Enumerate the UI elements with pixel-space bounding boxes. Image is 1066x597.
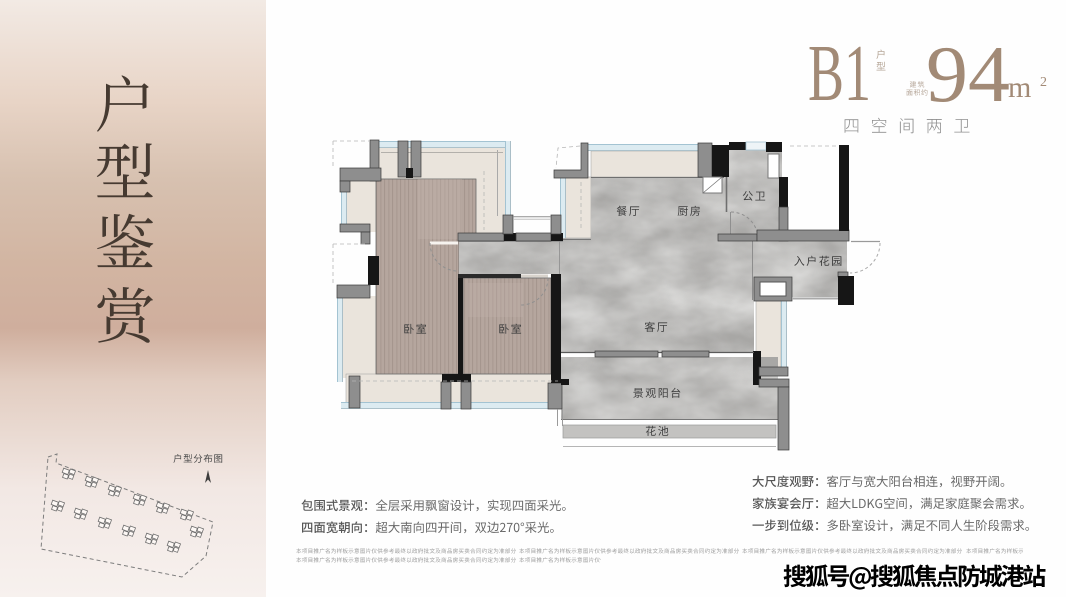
- svg-text:2: 2: [1040, 75, 1047, 90]
- svg-text:B1: B1: [808, 30, 871, 118]
- svg-text:m: m: [1008, 71, 1031, 104]
- svg-text:94: 94: [926, 31, 1010, 119]
